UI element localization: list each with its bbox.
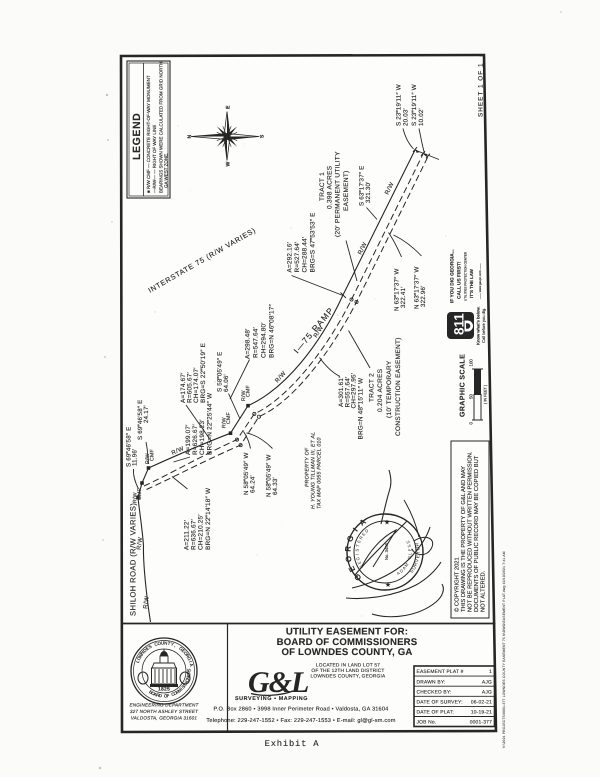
svg-text:BRG=N 48‴15′11″ W: BRG=N 48‴15′11″ W	[358, 377, 365, 440]
svg-text:AJG: AJG	[482, 679, 492, 685]
svg-text:N: N	[187, 134, 193, 138]
svg-text:0.398 ACRES: 0.398 ACRES	[327, 165, 334, 209]
svg-text:IT'S THE LAW: IT'S THE LAW	[469, 268, 474, 298]
svg-text:322.41′: 322.41′	[400, 286, 407, 308]
svg-text:Telephone: 229-247-1552 • F: Telephone: 229-247-1552 • Fax: 229-247-1…	[206, 717, 395, 724]
svg-text:CMF: CMF	[137, 488, 143, 500]
svg-text:S: S	[186, 669, 191, 672]
svg-text:V:\2021 PROJECTS\0001-377 LOWN: V:\2021 PROJECTS\0001-377 LOWNDES COUNTY…	[502, 551, 506, 748]
svg-text:© COPYRIGHT 2021: © COPYRIGHT 2021	[454, 557, 461, 612]
svg-text:CONSTRUCTION EASEMENT): CONSTRUCTION EASEMENT)	[395, 337, 402, 436]
svg-text:10-19-21: 10-19-21	[471, 710, 492, 716]
svg-text:EASEMENT): EASEMENT)	[343, 170, 350, 211]
svg-text:(10′ TEMPORARY: (10′ TEMPORARY	[386, 360, 393, 418]
svg-text:A=211.22′: A=211.22′	[184, 519, 191, 550]
svg-text:DATE OF PLAT:: DATE OF PLAT:	[417, 710, 454, 716]
svg-text:S 23‴19′11″ W: S 23‴19′11″ W	[396, 84, 403, 126]
svg-text:SHILOH ROAD (R/W VARIES): SHILOH ROAD (R/W VARIES)	[129, 503, 138, 616]
svg-text:GRAPHIC SCALE: GRAPHIC SCALE	[460, 354, 467, 417]
svg-text:THIS DRAWING IS THE PROPERTY O: THIS DRAWING IS THE PROPERTY OF G&L AND …	[460, 466, 467, 612]
svg-text:CHECKED BY:: CHECKED BY:	[417, 689, 452, 695]
svg-text:—R/W— — RIGHT OF WAY LINE: —R/W— — RIGHT OF WAY LINE	[152, 125, 157, 193]
svg-text:IF YOU DIG GEORGIA...: IF YOU DIG GEORGIA...	[450, 249, 456, 303]
svg-text:A=298.48′: A=298.48′	[245, 328, 252, 359]
svg-text:11.96′: 11.96′	[132, 448, 139, 466]
svg-text:S: S	[355, 548, 360, 551]
svg-text:100: 100	[469, 359, 474, 367]
svg-text:0001-377: 0001-377	[470, 720, 492, 726]
svg-text:P.O. Box 2860 • 3998 Inner: P.O. Box 2860 • 3998 Inner Perimeter Roa…	[213, 706, 388, 713]
svg-text:CALL US FIRST!: CALL US FIRST!	[457, 261, 463, 299]
svg-text:CH=297.95′: CH=297.95′	[351, 372, 358, 408]
svg-text:TRACT 2: TRACT 2	[369, 373, 376, 402]
svg-text:LOWNDES COUNTY, GEORGIA: LOWNDES COUNTY, GEORGIA	[311, 674, 386, 680]
svg-text:SURVEYING ▪ MAPPING: SURVEYING ▪ MAPPING	[235, 696, 308, 702]
svg-text:CH=294.80′: CH=294.80′	[261, 322, 268, 358]
svg-text:BRG=N 22‴14′18″ W: BRG=N 22‴14′18″ W	[205, 487, 212, 550]
svg-text:BRG=N 46‴08′17″: BRG=N 46‴08′17″	[269, 303, 276, 358]
svg-text:06-02-21: 06-02-21	[471, 700, 492, 706]
svg-text:24.17′: 24.17′	[143, 405, 150, 423]
svg-text:DRAWN BY:: DRAWN BY:	[417, 679, 446, 685]
svg-text:( IN FEET ): ( IN FEET )	[484, 384, 488, 404]
svg-text:SHEET 1 OF 1: SHEET 1 OF 1	[478, 62, 485, 117]
svg-text:E: E	[226, 105, 232, 109]
svg-text:GA WEST ZONE.: GA WEST ZONE.	[164, 153, 169, 188]
svg-text:50: 50	[469, 394, 474, 399]
svg-text:64.24′: 64.24′	[250, 475, 257, 493]
svg-text:S 23‴19′11″ W: S 23‴19′11″ W	[411, 84, 418, 126]
svg-text:★: ★	[384, 519, 390, 527]
svg-text:DATE OF SURVEY:: DATE OF SURVEY:	[417, 700, 463, 706]
svg-text:R: R	[343, 545, 352, 552]
svg-text:★: ★	[385, 581, 391, 589]
svg-text:R=636.67′: R=636.67′	[191, 519, 198, 550]
svg-text:ENGINEERING DEPARTMENT: ENGINEERING DEPARTMENT	[129, 703, 199, 708]
svg-text:10.02′: 10.02′	[418, 108, 425, 126]
svg-text:(20′ PERMANENT UTILITY: (20′ PERMANENT UTILITY	[335, 151, 342, 237]
svg-text:64.33′: 64.33′	[272, 477, 279, 495]
svg-text:OF THE 12TH LAND DISTRICT: OF THE 12TH LAND DISTRICT	[311, 668, 384, 674]
svg-text:CH=210.25′: CH=210.25′	[198, 514, 205, 550]
svg-text:322.96′: 322.96′	[420, 285, 427, 307]
svg-text:NOT BE REPRODUCED WITHOUT WRIT: NOT BE REPRODUCED WITHOUT WRITTEN PERMIS…	[467, 451, 474, 612]
svg-text:Exhibit A: Exhibit A	[265, 739, 320, 749]
svg-text:CMF: CMF	[226, 412, 232, 424]
svg-text:R=626.67′: R=626.67′	[192, 424, 199, 455]
svg-text:1: 1	[489, 669, 492, 675]
svg-text:NOT ALTERED.: NOT ALTERED.	[480, 570, 487, 612]
svg-text:W: W	[226, 161, 232, 166]
svg-text:LOCATED IN LAND LOT 57: LOCATED IN LAND LOT 57	[316, 663, 380, 669]
svg-text:S: S	[260, 134, 266, 138]
svg-text:R=527.64′: R=527.64′	[294, 241, 301, 272]
svg-text:CMF: CMF	[150, 449, 156, 461]
svg-text:UTILITIES PROTECTION CENTER: UTILITIES PROTECTION CENTER	[464, 251, 468, 301]
svg-text:AJG: AJG	[482, 689, 492, 695]
svg-text:Call before you dig.: Call before you dig.	[481, 308, 486, 343]
svg-text:CH=174.07′: CH=174.07′	[193, 367, 200, 403]
svg-text:CMF: CMF	[246, 385, 252, 397]
svg-text:VALDOSTA, GEORGIA 31601: VALDOSTA, GEORGIA 31601	[131, 716, 198, 721]
svg-text:20.03′: 20.03′	[403, 108, 410, 126]
svg-text:CH=198.23′: CH=198.23′	[199, 419, 206, 455]
svg-text:0.204 ACRES: 0.204 ACRES	[377, 368, 384, 412]
svg-text:64.06′: 64.06′	[223, 374, 230, 392]
svg-text:811: 811	[452, 313, 467, 335]
svg-text:R=547.64′: R=547.64′	[253, 327, 260, 358]
svg-text:A=199.07′: A=199.07′	[185, 424, 192, 455]
svg-text:—— www.gaupc.com ——: —— www.gaupc.com ——	[478, 263, 482, 299]
svg-text:■ R/W CMF — CONCRETE RIGHT-OF-: ■ R/W CMF — CONCRETE RIGHT-OF-WAY MONUME…	[146, 75, 151, 193]
svg-text:EASEMENT PLAT #: EASEMENT PLAT #	[417, 669, 464, 675]
svg-text:A=292.16′: A=292.16′	[287, 241, 294, 272]
svg-text:DOCUMENTS OF PUBLIC RECORD MAY: DOCUMENTS OF PUBLIC RECORD MAY BE COPIED…	[473, 455, 480, 612]
svg-text:BRG=S 47‴53′53″ E: BRG=S 47‴53′53″ E	[310, 212, 317, 272]
svg-text:UTILITY EASEMENT FOR:: UTILITY EASEMENT FOR:	[286, 627, 408, 638]
svg-text:TRACT 1: TRACT 1	[319, 172, 326, 201]
svg-text:JOB No.: JOB No.	[417, 720, 437, 726]
svg-text:321.30′: 321.30′	[365, 181, 372, 203]
svg-text:OF LOWNDES COUNTY, GA: OF LOWNDES COUNTY, GA	[281, 647, 412, 658]
svg-text:Know what's below.: Know what's below.	[476, 306, 481, 345]
svg-text:327 NORTH ASHLEY STREET: 327 NORTH ASHLEY STREET	[130, 709, 199, 714]
svg-text:TAX MAP 0055 PARCEL 010: TAX MAP 0055 PARCEL 010	[317, 437, 323, 509]
svg-text:BRG=S 22‴50′19″ E: BRG=S 22‴50′19″ E	[200, 343, 207, 403]
svg-text:1825: 1825	[158, 687, 170, 693]
svg-text:CH=288.44′: CH=288.44′	[302, 236, 309, 272]
svg-text:BRG=N 22‴25′44″ W: BRG=N 22‴25′44″ W	[207, 392, 214, 455]
svg-text:LEGEND: LEGEND	[131, 113, 143, 160]
